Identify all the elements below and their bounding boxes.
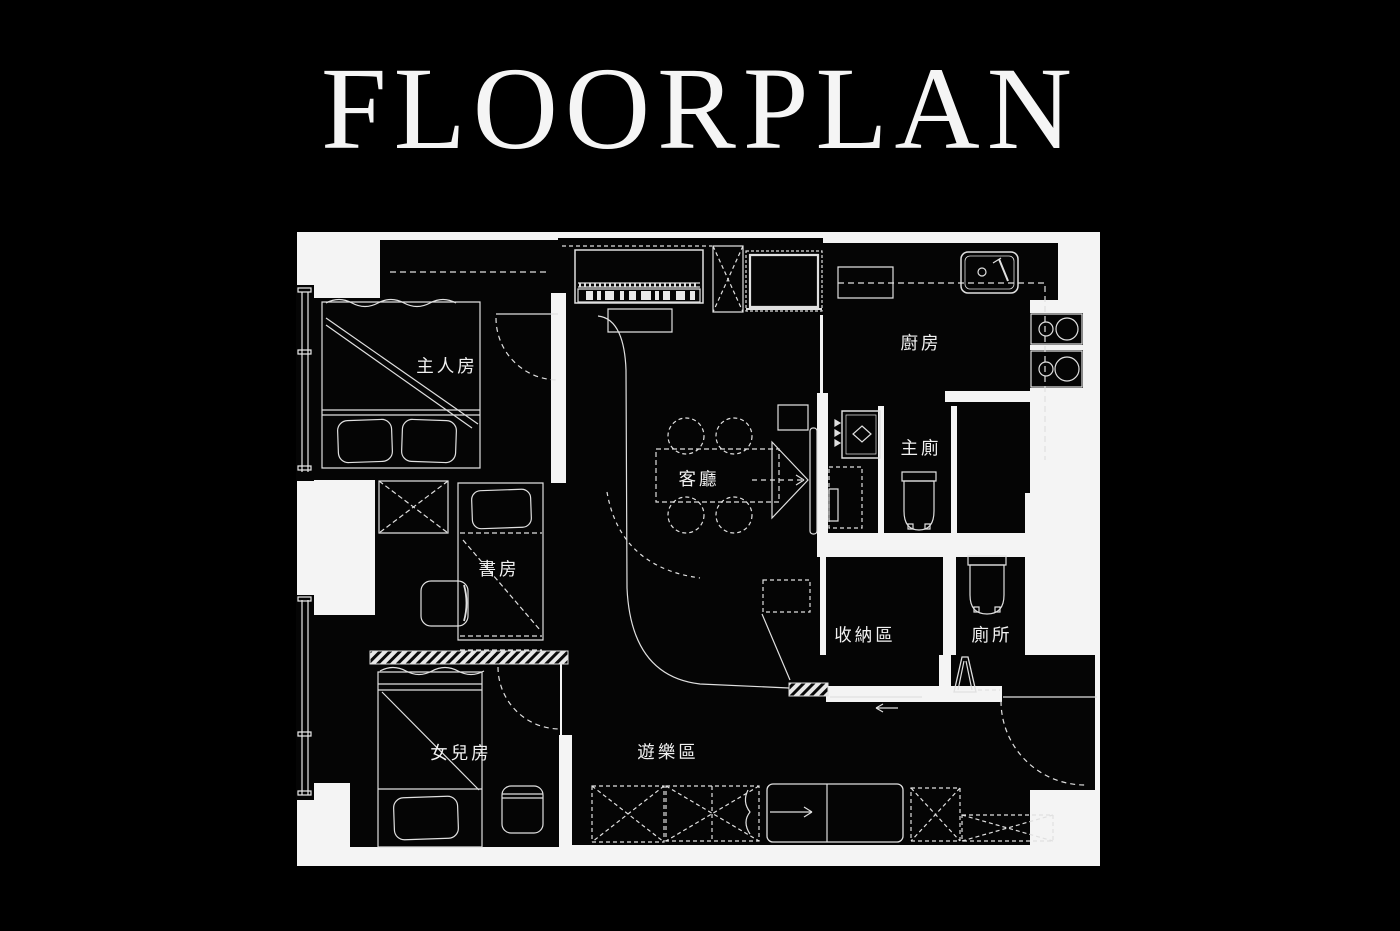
window-wall-lower bbox=[296, 595, 314, 800]
label-master-bathroom: 主廁 bbox=[901, 438, 942, 458]
label-play-area: 遊樂區 bbox=[637, 742, 699, 762]
wall-kitchen-bath bbox=[945, 391, 1030, 402]
bath-partition-2 bbox=[951, 406, 957, 535]
label-toilet: 廁所 bbox=[972, 625, 1013, 645]
sill-hatch bbox=[370, 651, 568, 664]
label-study: 書房 bbox=[479, 559, 520, 579]
wall-master-living bbox=[551, 293, 566, 483]
label-daughters-room: 女兒房 bbox=[430, 743, 492, 763]
stove-block-2 bbox=[1030, 350, 1083, 388]
window-wall-upper bbox=[296, 285, 314, 481]
label-master-bedroom: 主人房 bbox=[416, 356, 478, 376]
label-kitchen: 廚房 bbox=[901, 333, 942, 353]
room-study bbox=[375, 478, 570, 658]
floorplan-drawing: 主人房 廚房 主廁 客廳 書房 收納區 廁所 女兒房 遊樂區 bbox=[0, 0, 1400, 931]
toilet-door-gap bbox=[939, 655, 951, 700]
wall-living-bath bbox=[817, 393, 828, 557]
bath-partition-1 bbox=[878, 406, 884, 535]
wall-daughter-play bbox=[559, 735, 572, 848]
label-storage: 收納區 bbox=[834, 625, 896, 645]
label-living-room: 客廳 bbox=[679, 469, 720, 489]
threshold-hatch bbox=[789, 683, 828, 696]
room-master-bath bbox=[826, 400, 1025, 535]
hallway-band bbox=[820, 533, 1035, 557]
floorplan-page: FLOORPLAN bbox=[0, 0, 1400, 931]
